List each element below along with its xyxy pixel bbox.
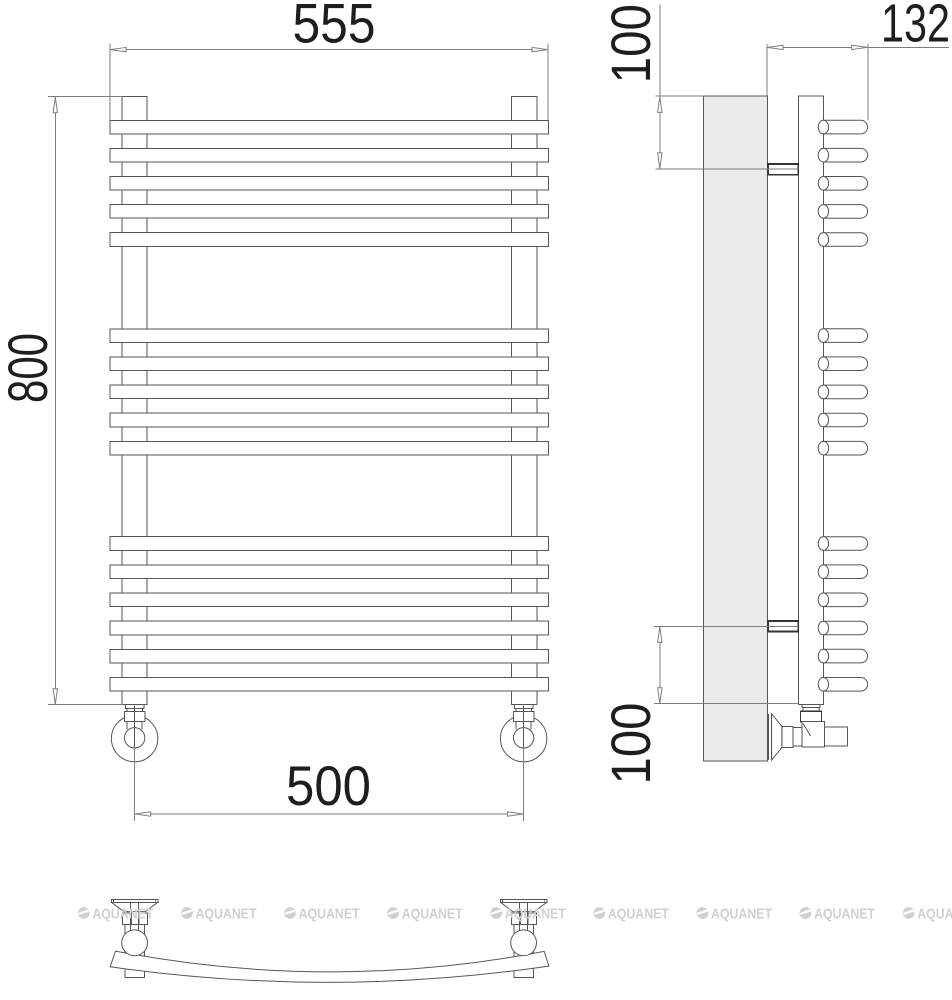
svg-text:500: 500 xyxy=(286,754,371,817)
svg-text:AQUANET: AQUANET xyxy=(402,905,463,922)
svg-text:AQUANET: AQUANET xyxy=(917,905,952,922)
svg-text:100: 100 xyxy=(599,703,662,785)
svg-text:555: 555 xyxy=(293,0,376,54)
svg-text:AQUANET: AQUANET xyxy=(608,905,669,922)
svg-text:132: 132 xyxy=(881,0,950,53)
svg-text:AQUANET: AQUANET xyxy=(711,905,772,922)
svg-text:100: 100 xyxy=(599,4,662,83)
svg-text:AQUANET: AQUANET xyxy=(505,905,566,922)
svg-text:AQUANET: AQUANET xyxy=(196,905,257,922)
svg-text:AQUANET: AQUANET xyxy=(299,905,360,922)
svg-text:AQUANET: AQUANET xyxy=(92,905,153,922)
svg-text:AQUANET: AQUANET xyxy=(814,905,875,922)
svg-text:800: 800 xyxy=(0,333,59,403)
